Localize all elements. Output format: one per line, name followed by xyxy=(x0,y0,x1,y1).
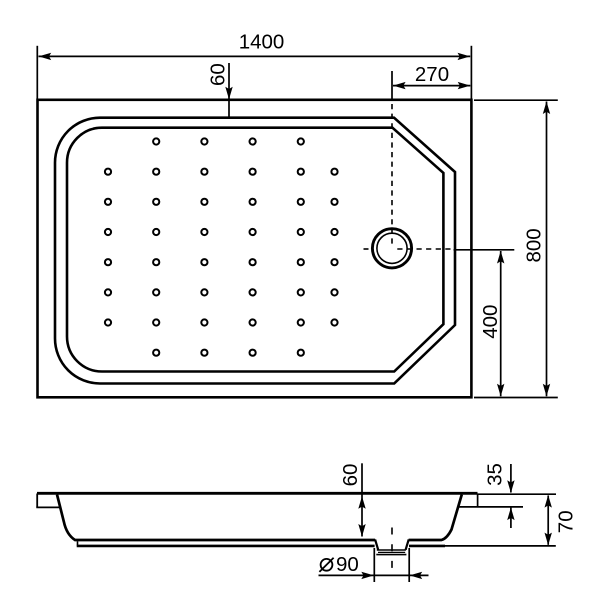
svg-text:60: 60 xyxy=(206,63,229,86)
svg-text:270: 270 xyxy=(415,63,449,86)
svg-text:60: 60 xyxy=(339,464,362,487)
svg-text:800: 800 xyxy=(522,228,545,262)
svg-text:70: 70 xyxy=(555,510,578,533)
svg-text:35: 35 xyxy=(484,463,507,486)
svg-text:400: 400 xyxy=(479,305,502,339)
svg-text:90: 90 xyxy=(336,553,359,576)
svg-text:1400: 1400 xyxy=(239,31,285,54)
